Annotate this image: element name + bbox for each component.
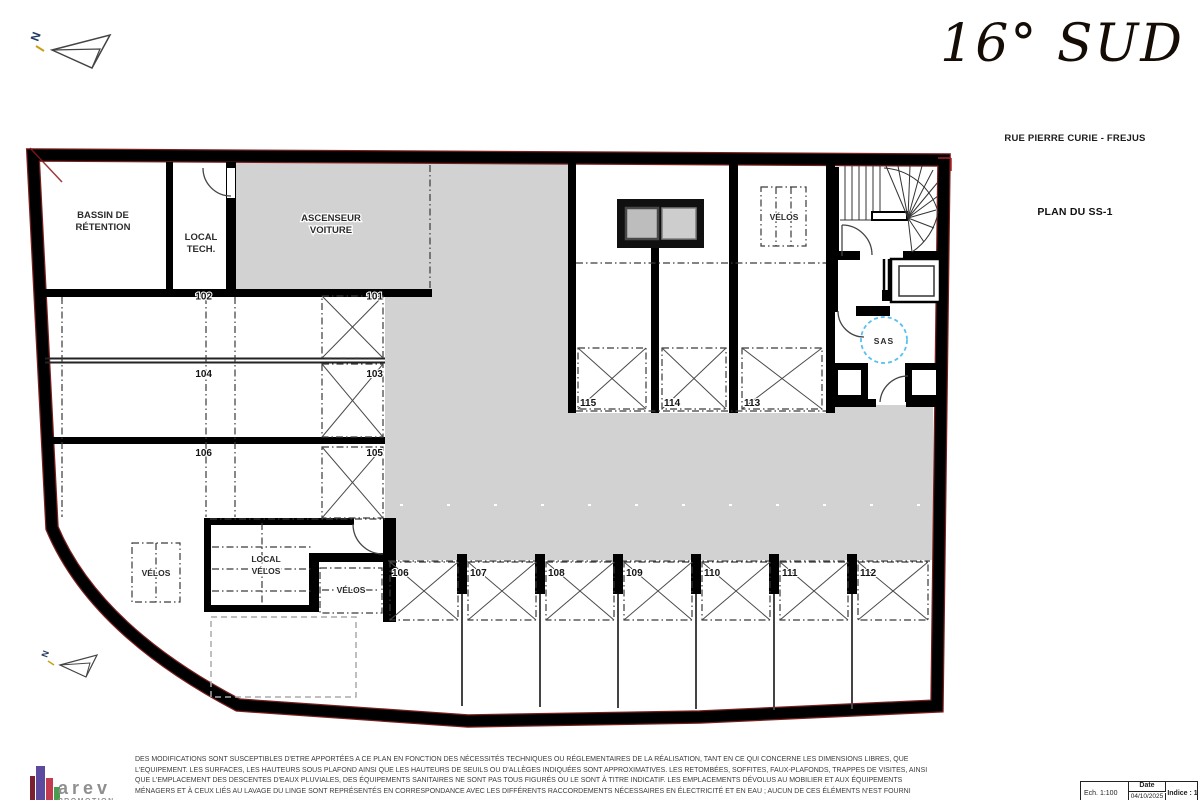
floor-plan-drawing: 102 101 104 103 106 105 115 114 — [0, 0, 1200, 800]
parking-bottom: 106 107 108 109 110 111 112 — [388, 554, 930, 710]
parking-number: 106 — [195, 448, 212, 459]
disclaimer-line: DES MODIFICATIONS SONT SUSCEPTIBLES D'ET… — [135, 755, 945, 766]
parking-number: 106 — [392, 568, 409, 579]
logo-bar-maroon — [30, 776, 35, 800]
parking-number: 101 — [366, 292, 383, 303]
north-arrow-top: N — [28, 30, 110, 68]
disclaimer-line: L'EQUIPEMENT. LES SURFACES, LES HAUTEURS… — [135, 766, 945, 777]
room-label-velos-mid: VÉLOS — [337, 585, 366, 595]
brand-logo: 16° SUD — [940, 14, 1184, 74]
room-label-local-velos: VÉLOS — [252, 566, 281, 576]
north-label: N — [39, 649, 51, 659]
room-label-local-tech: LOCAL — [185, 232, 218, 243]
elevator — [882, 259, 940, 302]
door-arc-stair — [842, 225, 872, 255]
parking-number: 105 — [366, 448, 383, 459]
disclaimer-line: QUE L'EMPLACEMENT DES DESCENTES D'EAUX P… — [135, 776, 945, 787]
parking-number: 111 — [782, 568, 798, 579]
stairwell — [840, 166, 938, 252]
door-arc-local-velos — [353, 524, 383, 554]
shaft-block — [617, 199, 704, 248]
room-label-ascenseur: VOITURE — [310, 225, 352, 236]
stair-handrail — [872, 212, 907, 220]
logo-bar-crimson — [46, 778, 53, 800]
room-label-bassin: RÉTENTION — [76, 222, 131, 233]
room-label-bassin: BASSIN DE — [77, 210, 129, 221]
date-label-cell: Date — [1129, 782, 1166, 792]
logo-wordmark: arev — [58, 778, 111, 799]
north-arrow-bottom: N — [39, 649, 97, 677]
parking-number: 104 — [195, 369, 212, 380]
parking-number: 103 — [366, 369, 383, 380]
parking-space-101 — [322, 296, 383, 358]
parking-number: 112 — [860, 568, 877, 579]
parking-number: 114 — [664, 398, 681, 409]
storage-zone-outline — [211, 617, 356, 697]
parking-number: 107 — [470, 568, 487, 579]
parking-number: 115 — [580, 398, 597, 409]
room-label-ascenseur: ASCENSEUR — [301, 213, 361, 224]
disclaimer: DES MODIFICATIONS SONT SUSCEPTIBLES D'ET… — [135, 755, 945, 797]
date-value-cell: 04/10/2025 — [1129, 793, 1166, 800]
room-label-velos-left: VÉLOS — [142, 568, 171, 578]
disclaimer-line: MÉNAGERS ET À CEUX LIÉS AU LAVAGE DU LIN… — [135, 787, 945, 798]
parking-number: 102 — [195, 292, 212, 303]
scale-cell: Ech. 1:100 — [1081, 782, 1129, 800]
room-label-local-velos: LOCAL — [251, 554, 280, 564]
project-address: RUE PIERRE CURIE - FREJUS — [960, 133, 1190, 144]
plan-sheet: 102 101 104 103 106 105 115 114 — [0, 0, 1200, 800]
parking-number: 109 — [626, 568, 643, 579]
parking-number: 108 — [548, 568, 565, 579]
room-label-sas: SAS — [874, 336, 894, 346]
room-label-local-tech: TECH. — [187, 244, 216, 255]
indice-cell: Indice : 1 — [1166, 782, 1199, 800]
page-title: PLAN DU SS-1 — [960, 206, 1190, 218]
logo-bar-purple — [36, 766, 45, 800]
north-label: N — [28, 30, 44, 43]
parking-number: 110 — [704, 568, 721, 579]
title-block: Ech. 1:100 Date 04/10/2025 Indice : 1 — [1080, 781, 1198, 800]
parking-left: 102 101 104 103 106 105 — [62, 292, 385, 520]
parking-number: 113 — [744, 398, 761, 409]
room-label-velos-top: VÉLOS — [770, 212, 799, 222]
